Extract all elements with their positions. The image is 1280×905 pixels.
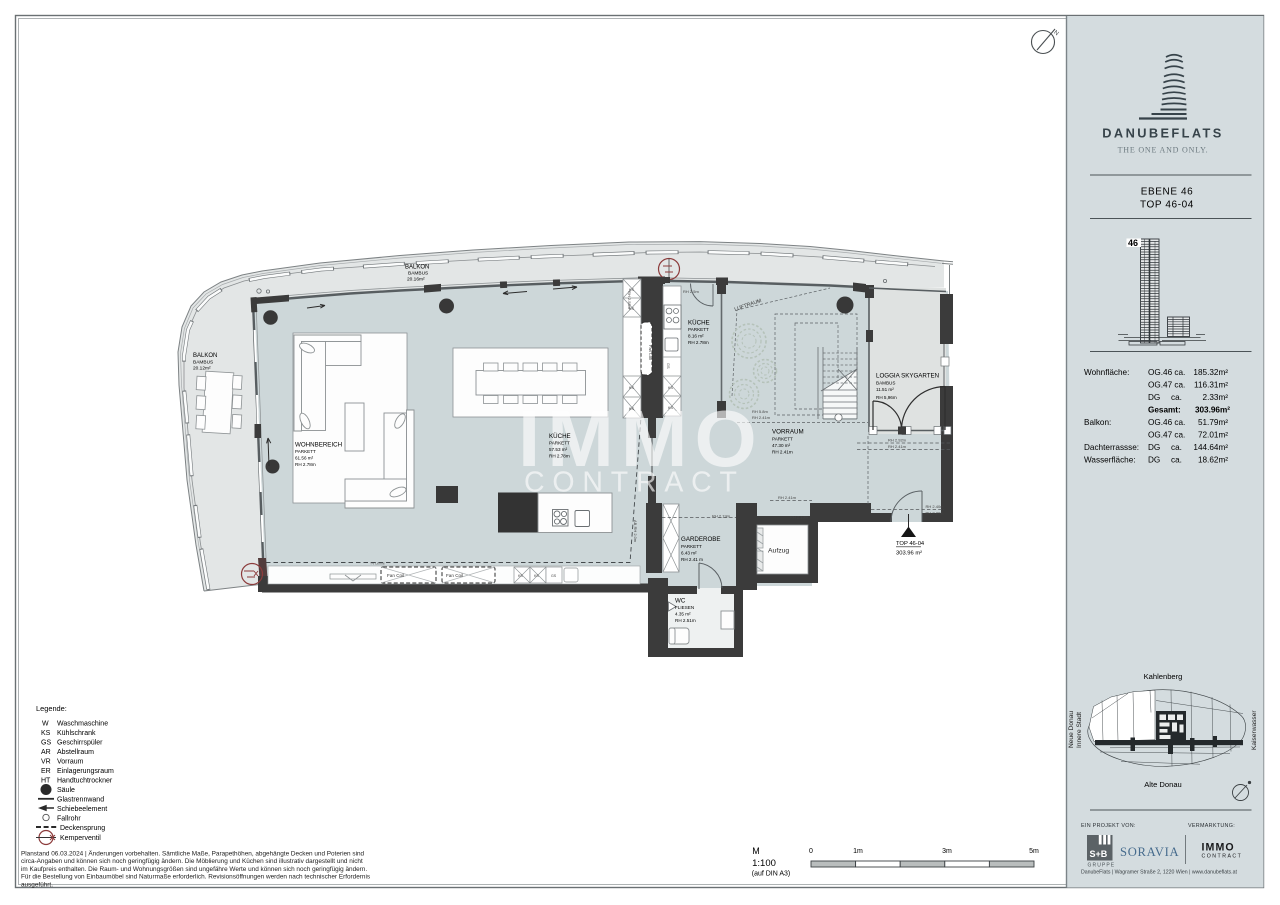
svg-text:116.31m²: 116.31m²	[1194, 381, 1228, 390]
svg-text:KÜCHE: KÜCHE	[549, 433, 571, 440]
svg-text:Innere Stadt: Innere Stadt	[1076, 712, 1083, 748]
svg-text:GS: GS	[41, 740, 51, 747]
svg-text:Neue Donau: Neue Donau	[1068, 711, 1075, 748]
svg-text:circa-Angaben und können sich: circa-Angaben und können sich noch gerin…	[21, 858, 363, 865]
svg-text:DG: DG	[1148, 443, 1160, 452]
svg-text:RH 2.78m: RH 2.78m	[688, 340, 709, 345]
svg-text:HT: HT	[41, 778, 51, 785]
svg-text:VR: VR	[41, 759, 51, 766]
svg-text:RH 2.92m: RH 2.92m	[888, 438, 907, 443]
svg-text:ausgeführt.: ausgeführt.	[21, 881, 53, 888]
svg-text:WC: WC	[675, 598, 686, 605]
svg-text:OG.47 ca.: OG.47 ca.	[1148, 431, 1185, 440]
svg-text:Dachterrassse:: Dachterrassse:	[1084, 443, 1139, 452]
svg-text:PARKETT: PARKETT	[295, 449, 316, 454]
svg-text:144.64m²: 144.64m²	[1193, 443, 1228, 452]
svg-text:5m: 5m	[1029, 848, 1039, 855]
svg-text:THE ONE AND ONLY.: THE ONE AND ONLY.	[1118, 146, 1209, 155]
svg-text:BAMBUS: BAMBUS	[408, 271, 428, 277]
svg-text:1m: 1m	[853, 848, 863, 855]
svg-text:2.33m²: 2.33m²	[1203, 393, 1229, 402]
svg-text:Wohnfläche:: Wohnfläche:	[1084, 368, 1129, 377]
svg-text:SORAVIA: SORAVIA	[1120, 845, 1179, 859]
svg-text:CONTRACT: CONTRACT	[1202, 854, 1243, 860]
svg-text:RH 2.41m: RH 2.41m	[778, 495, 797, 500]
svg-text:Glastrennwand: Glastrennwand	[57, 797, 104, 804]
svg-text:RH 2.19m: RH 2.19m	[790, 515, 809, 520]
svg-text:DANUBEFLATS: DANUBEFLATS	[1102, 126, 1223, 141]
svg-text:GRUPPE: GRUPPE	[1088, 863, 1116, 869]
svg-text:DG: DG	[1148, 393, 1160, 402]
svg-text:RH 5,96m: RH 5,96m	[876, 395, 897, 400]
svg-text:57.53 m²: 57.53 m²	[549, 447, 568, 452]
svg-text:EIN PROJEKT VON:: EIN PROJEKT VON:	[1081, 823, 1136, 829]
svg-text:PARKETT: PARKETT	[772, 437, 793, 442]
svg-text:ca.: ca.	[1171, 456, 1182, 465]
svg-text:RH 2.41m: RH 2.41m	[888, 444, 907, 449]
svg-text:Schiebeelement: Schiebeelement	[57, 806, 107, 813]
svg-text:Kemperventil: Kemperventil	[60, 835, 101, 842]
svg-text:KÜCHE: KÜCHE	[688, 320, 710, 327]
svg-text:Geschirrspüler: Geschirrspüler	[57, 740, 103, 747]
svg-text:BAMBUS: BAMBUS	[876, 381, 895, 386]
svg-text:Handtuchtrockner: Handtuchtrockner	[57, 778, 113, 785]
svg-text:Für die Bestellung von Einbaum: Für die Bestellung von Einbaumöbel sind …	[21, 874, 370, 881]
svg-text:WOHNBEREICH: WOHNBEREICH	[295, 442, 342, 449]
svg-text:RH 2.29m: RH 2.29m	[926, 511, 945, 516]
svg-text:Kaiserwasser: Kaiserwasser	[1251, 710, 1258, 750]
svg-text:ca.: ca.	[1171, 443, 1182, 452]
svg-text:Fallrohr: Fallrohr	[57, 816, 81, 823]
svg-text:(auf DIN A3): (auf DIN A3)	[752, 871, 791, 878]
svg-text:TOP 46-04: TOP 46-04	[896, 541, 925, 547]
svg-text:RH 2.78m: RH 2.78m	[549, 454, 570, 459]
svg-text:ER: ER	[41, 768, 51, 775]
svg-text:3m: 3m	[942, 848, 952, 855]
svg-text:0: 0	[809, 848, 813, 855]
svg-text:DanubeFlats | Wagramer S: DanubeFlats | Wagramer Straße 2, 1220 Wi…	[1081, 870, 1237, 876]
svg-text:KS: KS	[41, 730, 51, 737]
svg-text:20.16m²: 20.16m²	[407, 277, 425, 283]
svg-text:72.01m²: 72.01m²	[1198, 431, 1228, 440]
svg-text:OG.47 ca.: OG.47 ca.	[1148, 381, 1185, 390]
svg-text:im Kaufpreis enthalten. Die Ra: im Kaufpreis enthalten. Die Raum- und Wo…	[21, 866, 367, 873]
svg-text:FLIESEN: FLIESEN	[675, 605, 694, 610]
svg-text:RH 2.51m: RH 2.51m	[675, 618, 696, 623]
svg-text:LOGGIA SKYGARTEN: LOGGIA SKYGARTEN	[876, 373, 939, 380]
svg-text:Alte Donau: Alte Donau	[1144, 780, 1182, 789]
svg-text:Wasserfläche:: Wasserfläche:	[1084, 456, 1136, 465]
svg-text:CONTRACT: CONTRACT	[524, 467, 745, 499]
svg-text:Fan Coil: Fan Coil	[387, 573, 404, 578]
svg-text:RH 2.40m: RH 2.40m	[926, 504, 945, 509]
svg-text:PARKETT: PARKETT	[549, 441, 570, 446]
svg-text:1:100: 1:100	[752, 858, 776, 869]
svg-text:PARKETT: PARKETT	[688, 327, 709, 332]
svg-text:4.35 m²: 4.35 m²	[675, 612, 691, 617]
svg-text:303.96m²: 303.96m²	[1195, 406, 1230, 415]
svg-text:51.79m²: 51.79m²	[1198, 418, 1228, 427]
svg-text:RH 2.41 m: RH 2.41 m	[681, 557, 703, 562]
svg-text:303.96 m²: 303.96 m²	[896, 551, 922, 557]
svg-text:AB RH 2.0m: AB RH 2.0m	[633, 520, 638, 543]
svg-text:Planstand 06.03.2024 | Ände: Planstand 06.03.2024 | Änderungen vorbeh…	[21, 850, 365, 858]
svg-text:RH 2.41m: RH 2.41m	[772, 450, 793, 455]
svg-text:M: M	[752, 846, 760, 856]
svg-text:RH 2.19m: RH 2.19m	[712, 514, 731, 519]
svg-text:8.16 m²: 8.16 m²	[688, 334, 704, 339]
svg-text:BALKON: BALKON	[193, 353, 217, 359]
svg-text:GS: GS	[666, 363, 670, 369]
svg-text:BALKON: BALKON	[405, 265, 429, 271]
svg-text:47.30 m²: 47.30 m²	[772, 443, 791, 448]
svg-text:VERMARKTUNG:: VERMARKTUNG:	[1188, 823, 1235, 829]
svg-text:OG.46 ca.: OG.46 ca.	[1148, 368, 1185, 377]
svg-text:GS: GS	[551, 574, 557, 578]
svg-text:GARDEROBE: GARDEROBE	[681, 536, 721, 543]
svg-text:TOP 46-04: TOP 46-04	[1140, 200, 1194, 211]
svg-text:OG.46 ca.: OG.46 ca.	[1148, 418, 1185, 427]
svg-text:DG: DG	[1148, 456, 1160, 465]
svg-text:61.56 m²: 61.56 m²	[295, 456, 314, 461]
svg-text:KS: KS	[534, 574, 539, 578]
svg-text:RH 2.5m: RH 2.5m	[683, 289, 699, 294]
svg-text:W: W	[42, 721, 49, 728]
svg-text:VORRAUM: VORRAUM	[772, 429, 804, 436]
svg-text:Kühlschrank: Kühlschrank	[57, 730, 96, 737]
svg-text:RH 2.78m: RH 2.78m	[295, 462, 316, 467]
svg-text:Säule: Säule	[57, 787, 75, 794]
svg-text:Fan Coil: Fan Coil	[446, 573, 463, 578]
svg-text:PARKETT: PARKETT	[681, 544, 702, 549]
svg-text:Vorraum: Vorraum	[57, 759, 84, 766]
svg-text:S+B: S+B	[1090, 849, 1108, 859]
svg-text:Balkon:: Balkon:	[1084, 418, 1111, 427]
svg-text:RH 2.41m: RH 2.41m	[752, 415, 771, 420]
svg-text:11.51 m²: 11.51 m²	[876, 387, 894, 392]
svg-text:RH 2.55m: RH 2.55m	[627, 291, 632, 310]
svg-text:Aufzug: Aufzug	[768, 548, 789, 555]
svg-text:46: 46	[1128, 238, 1138, 248]
svg-text:Gesamt:: Gesamt:	[1148, 406, 1181, 415]
svg-text:KS: KS	[629, 386, 635, 390]
svg-text:RH 5.8m: RH 5.8m	[752, 409, 768, 414]
svg-text:185.32m²: 185.32m²	[1193, 368, 1228, 377]
svg-text:20.12m²: 20.12m²	[193, 366, 211, 372]
svg-text:Kahlenberg: Kahlenberg	[1144, 672, 1183, 681]
svg-text:Waschmaschine: Waschmaschine	[57, 721, 108, 728]
svg-text:Legende:: Legende:	[36, 704, 67, 713]
svg-text:18.62m²: 18.62m²	[1198, 456, 1228, 465]
svg-text:Abstellraum: Abstellraum	[57, 749, 94, 756]
svg-text:EBENE 46: EBENE 46	[1141, 187, 1194, 198]
svg-text:6.43 m²: 6.43 m²	[681, 551, 697, 556]
svg-text:Fan Coil: Fan Coil	[648, 345, 653, 360]
svg-text:BAMBUS: BAMBUS	[193, 360, 213, 366]
svg-text:Deckensprung: Deckensprung	[60, 825, 105, 832]
svg-text:AR: AR	[41, 749, 51, 756]
svg-text:IMMO: IMMO	[1202, 842, 1235, 854]
svg-text:ca.: ca.	[1171, 393, 1182, 402]
svg-text:KS: KS	[518, 574, 523, 578]
svg-text:KS: KS	[668, 386, 674, 390]
svg-text:Einlagerungsraum: Einlagerungsraum	[57, 768, 114, 775]
